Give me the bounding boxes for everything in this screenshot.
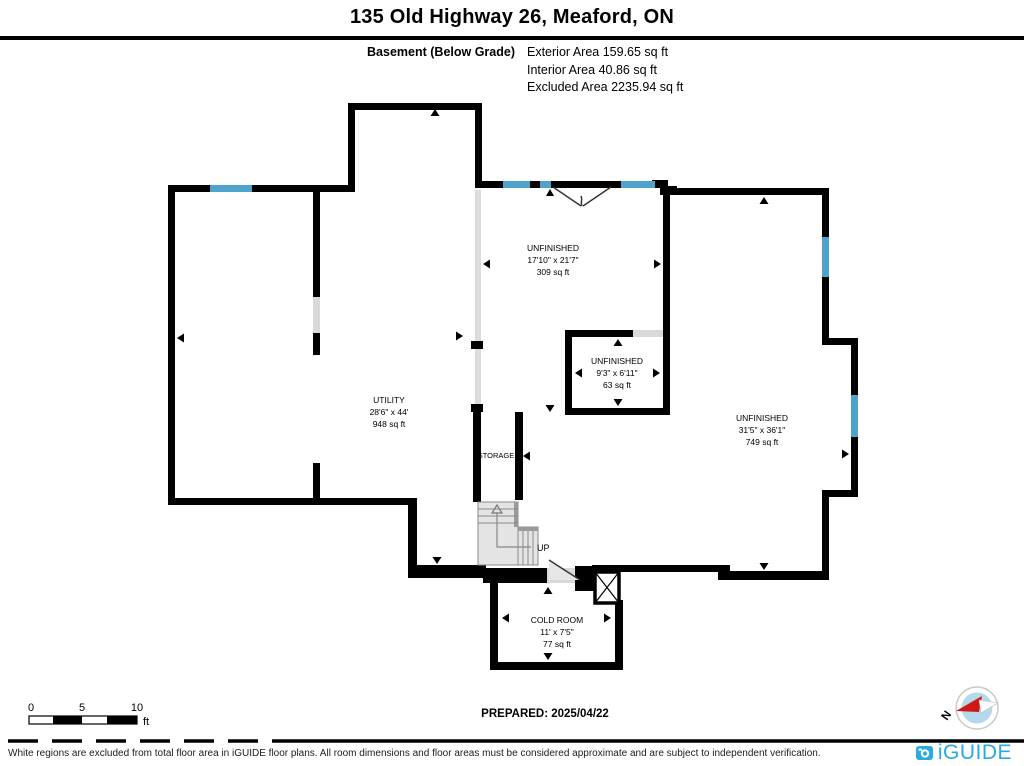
room-label-area: 948 sq ft — [373, 419, 406, 429]
room-label-dims: 17'10" x 21'7" — [527, 255, 578, 265]
iguide-logo: iGUIDE — [915, 741, 1012, 765]
room-label-dims: 28'6" x 44' — [370, 407, 409, 417]
stairs — [478, 502, 538, 565]
room-label-name: UNFINISHED — [527, 243, 579, 253]
windows — [210, 181, 858, 437]
iguide-wordmark: iGUIDE — [938, 741, 1012, 765]
storage-label: STORAGE — [478, 451, 515, 460]
double-door — [553, 187, 611, 206]
room-label-dims: 31'5" x 36'1" — [739, 425, 786, 435]
iguide-camera-icon — [915, 744, 935, 762]
room-label-area: 309 sq ft — [537, 267, 570, 277]
room-label-name: COLD ROOM — [531, 615, 583, 625]
disclaimer-text: White regions are excluded from total fl… — [8, 748, 821, 759]
room-label-name: UNFINISHED — [736, 413, 788, 423]
walls — [168, 103, 858, 670]
room-label-dims: 9'3" x 6'11" — [596, 368, 637, 378]
shaft-box — [595, 572, 619, 603]
room-label-area: 749 sq ft — [746, 437, 779, 447]
room-label-dims: 11' x 7'5" — [540, 627, 574, 637]
room-label-area: 77 sq ft — [543, 639, 572, 649]
room-label-name: UTILITY — [373, 395, 405, 405]
floorplan-page: 135 Old Highway 26, Meaford, ON Basement… — [0, 0, 1024, 766]
virtual-boundary — [475, 190, 481, 412]
room-label-name: UNFINISHED — [591, 356, 643, 366]
prepared-date: PREPARED: 2025/04/22 — [66, 708, 1024, 720]
up-label: UP — [537, 543, 550, 553]
floor-plan: UNFINISHED 17'10" x 21'7" 309 sq ft UNFI… — [0, 0, 1024, 766]
room-label-area: 63 sq ft — [603, 380, 632, 390]
scale-tick-0: 0 — [28, 702, 34, 714]
